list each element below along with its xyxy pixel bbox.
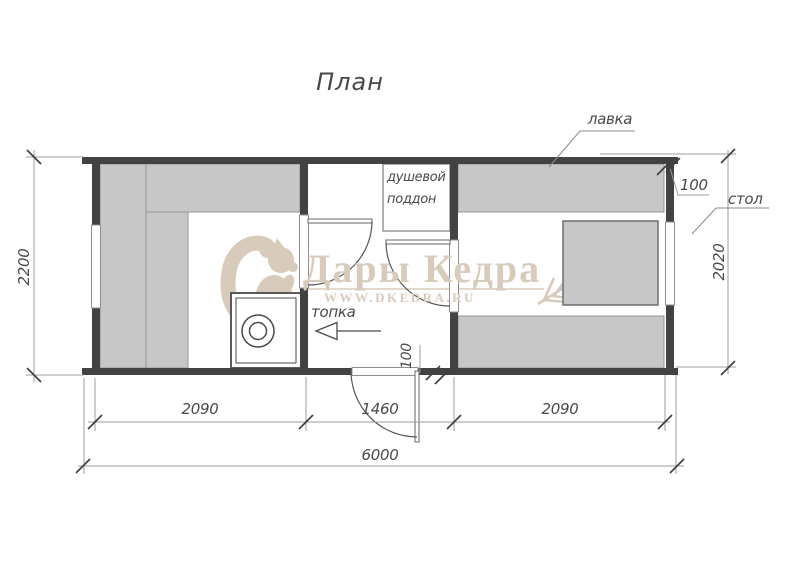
wall-left-lower [92, 308, 100, 368]
rest-room-table [563, 221, 658, 305]
table-label: стол [728, 190, 763, 208]
dim-left-height: 2200 [15, 225, 33, 309]
watermark-site: WWW.DKEDRA.RU [318, 290, 482, 306]
partition-rest-upper [450, 164, 458, 240]
partition-steam-lower [300, 288, 308, 368]
stove-direction-arrow-icon [316, 323, 381, 340]
steam-room-bench-left [100, 164, 146, 368]
floor-plan-canvas: План 2090 1460 2090 6000 2200 2020 100 1… [0, 0, 800, 565]
wall-bottom-left [82, 368, 352, 375]
shower-tray-label-line2: поддон [387, 192, 436, 207]
window-left [92, 225, 101, 308]
wall-bottom-right [418, 368, 678, 375]
wall-top [82, 157, 678, 164]
partition-steam-upper [300, 164, 308, 215]
wall-right-lower [666, 305, 674, 368]
stove [231, 293, 301, 368]
rest-room-bench-bottom [458, 316, 664, 368]
wall-left-upper [92, 164, 100, 225]
dim-wall-thickness-right: 100 [680, 176, 708, 194]
watermark-brand: Дары Кедра [288, 245, 556, 292]
dim-washroom-width: 1460 [338, 400, 422, 418]
steam-room-bench-top [146, 164, 300, 212]
dim-wall-thickness-door: 100 [399, 331, 415, 381]
dim-right-height: 2020 [710, 220, 728, 304]
table-label-leader [692, 208, 769, 234]
shower-tray-label-line1: душевой [387, 170, 446, 185]
window-right [666, 222, 675, 305]
rest-door-leaf [386, 240, 450, 244]
partition-rest-lower [450, 312, 458, 368]
dim-rest-room-width: 2090 [518, 400, 602, 418]
rest-room-bench-top [458, 164, 664, 212]
page-title: План [280, 68, 420, 96]
dim-total-width: 6000 [338, 446, 422, 464]
steam-room-bench-step [146, 212, 188, 368]
steam-door-leaf [308, 219, 372, 223]
bench-label: лавка [568, 110, 652, 128]
wall-right-upper [666, 164, 674, 222]
dim-steam-room-width: 2090 [158, 400, 242, 418]
